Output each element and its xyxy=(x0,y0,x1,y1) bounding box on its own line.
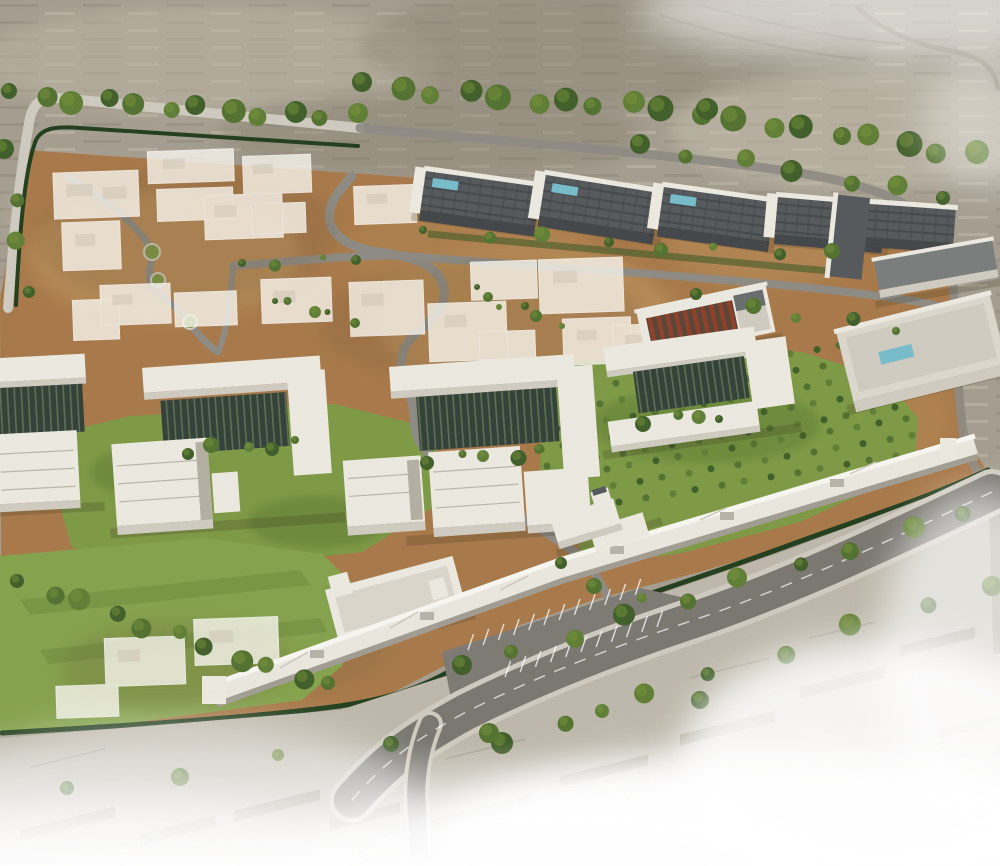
tree-highlight xyxy=(296,671,307,682)
tree-highlight xyxy=(783,162,795,174)
orchard-tree xyxy=(814,346,821,353)
tree-highlight xyxy=(835,128,845,138)
tree-highlight xyxy=(739,151,749,161)
tree-highlight xyxy=(615,605,627,617)
tree-highlight xyxy=(585,99,595,109)
tree-highlight xyxy=(165,103,174,112)
orchard-tree xyxy=(729,445,736,452)
orchard-tree xyxy=(610,482,617,489)
orchard-tree xyxy=(788,404,795,411)
orchard-tree xyxy=(778,436,785,443)
tree-highlight xyxy=(224,101,237,114)
tree-highlight xyxy=(313,111,322,120)
tree-highlight xyxy=(196,639,206,649)
south-cube xyxy=(0,430,80,504)
tree-highlight xyxy=(605,238,611,244)
tree-highlight xyxy=(636,685,647,696)
tree-highlight xyxy=(233,652,245,664)
east-bar xyxy=(287,369,332,475)
link-tower xyxy=(212,472,241,514)
tree-highlight xyxy=(310,307,317,314)
orchard-tree xyxy=(804,383,811,390)
glass-mullions xyxy=(0,384,85,437)
tree-highlight xyxy=(292,437,296,441)
orchard-tree xyxy=(793,367,800,374)
tree-highlight xyxy=(48,588,58,598)
tree-highlight xyxy=(133,620,144,631)
tree-highlight xyxy=(560,323,563,326)
tree-highlight xyxy=(497,304,500,307)
tree-highlight xyxy=(890,177,901,188)
tree-highlight xyxy=(846,177,855,186)
tree-highlight xyxy=(459,451,463,455)
tree-highlight xyxy=(321,255,324,258)
orchard-tree xyxy=(604,466,611,473)
tree-highlight xyxy=(791,116,804,129)
tree-highlight xyxy=(632,136,643,147)
tree-highlight xyxy=(111,607,120,616)
tree-highlight xyxy=(350,105,361,116)
orchard-tree xyxy=(860,440,867,447)
rendering-canvas xyxy=(0,0,1000,866)
tree-highlight xyxy=(792,314,798,320)
tree-highlight xyxy=(638,594,644,600)
tree-highlight xyxy=(556,89,569,102)
tree-highlight xyxy=(747,299,756,308)
tree-highlight xyxy=(183,449,190,456)
orchard-tree xyxy=(800,432,807,439)
tree-highlight xyxy=(795,558,803,566)
tree-highlight xyxy=(239,260,243,264)
orchard-tree xyxy=(820,363,827,370)
tree-highlight xyxy=(650,97,664,111)
tree-highlight xyxy=(61,93,74,106)
orchard-tree xyxy=(784,453,791,460)
tree-highlight xyxy=(40,89,51,100)
orchard-tree xyxy=(653,457,660,464)
orchard-tree xyxy=(762,457,769,464)
orchard-tree xyxy=(866,457,873,464)
tree-highlight xyxy=(351,319,357,325)
tree-highlight xyxy=(325,309,328,312)
tree-highlight xyxy=(245,443,251,449)
orchard-tree xyxy=(719,482,726,489)
tree-highlight xyxy=(24,287,31,294)
tree-highlight xyxy=(674,411,680,417)
tree-highlight xyxy=(485,233,492,240)
tree-highlight xyxy=(723,107,737,121)
tree-highlight xyxy=(478,451,485,458)
tree-highlight xyxy=(394,78,407,91)
tree-highlight xyxy=(273,298,276,301)
tree-highlight xyxy=(899,133,913,147)
standalone-cube-building xyxy=(343,455,426,535)
orchard-tree xyxy=(616,499,623,506)
tree-highlight xyxy=(512,451,521,460)
tree-highlight xyxy=(729,569,740,580)
tree-highlight xyxy=(484,293,490,299)
orchard-tree xyxy=(827,428,834,435)
orchard-tree xyxy=(544,463,551,470)
orchard-tree xyxy=(817,465,824,472)
orchard-tree xyxy=(619,396,626,403)
tree-highlight xyxy=(826,244,835,253)
tree-highlight xyxy=(423,88,433,98)
tree-highlight xyxy=(680,151,688,159)
orchard-tree xyxy=(909,432,916,439)
orchard-tree xyxy=(768,473,775,480)
orchard-tree xyxy=(795,469,802,476)
tree-highlight xyxy=(693,411,701,419)
orchard-tree xyxy=(876,419,883,426)
orchard-tree xyxy=(613,380,620,387)
tree-highlight xyxy=(588,579,597,588)
tree-highlight xyxy=(522,303,526,307)
tree-highlight xyxy=(775,249,782,256)
tree-highlight xyxy=(287,103,299,115)
orchard-tree xyxy=(892,404,899,411)
orchard-tree xyxy=(702,449,709,456)
tree-highlight xyxy=(11,575,19,583)
orchard-tree xyxy=(686,470,693,477)
tree-highlight xyxy=(532,96,543,107)
tree-highlight xyxy=(625,92,637,104)
tree-highlight xyxy=(702,668,710,676)
tree-highlight xyxy=(682,595,691,604)
tree-highlight xyxy=(637,417,646,426)
tree-highlight xyxy=(488,86,502,100)
tree-highlight xyxy=(843,544,853,554)
tree-highlight xyxy=(322,677,330,685)
orchard-tree xyxy=(741,478,748,485)
orchard-tree xyxy=(637,478,644,485)
tree-highlight xyxy=(848,313,856,321)
tree-highlight xyxy=(481,725,492,736)
tree-highlight xyxy=(259,658,268,667)
orchard-tree xyxy=(821,416,828,423)
orchard-tree xyxy=(643,494,650,501)
end-tower xyxy=(202,676,226,704)
orchard-tree xyxy=(854,424,861,431)
tree-highlight xyxy=(655,244,663,252)
tree-highlight xyxy=(124,95,136,107)
orchard-tree xyxy=(761,408,768,415)
tree-highlight xyxy=(270,261,277,268)
orchard-tree xyxy=(675,453,682,460)
tree-highlight xyxy=(8,233,18,243)
orchard-tree xyxy=(887,436,894,443)
tree-highlight xyxy=(463,81,475,93)
tree-highlight xyxy=(284,298,288,302)
tree-highlight xyxy=(266,443,274,451)
orchard-tree xyxy=(751,440,758,447)
end-tower xyxy=(940,438,956,458)
orchard-tree xyxy=(626,461,633,468)
tree-highlight xyxy=(421,457,429,465)
tree-highlight xyxy=(535,445,541,451)
orchard-tree xyxy=(597,400,604,407)
tree-highlight xyxy=(531,311,538,318)
tree-highlight xyxy=(698,100,710,112)
tree-highlight xyxy=(859,125,871,137)
glass-mullions xyxy=(416,387,559,451)
orchard-tree xyxy=(735,461,742,468)
tree-highlight xyxy=(556,558,563,565)
tree-highlight xyxy=(70,590,82,602)
tree-highlight xyxy=(937,192,945,200)
tree-highlight xyxy=(536,228,545,237)
tree-highlight xyxy=(710,243,714,247)
tree-highlight xyxy=(205,438,214,447)
tree-highlight xyxy=(454,657,465,668)
tree-highlight xyxy=(716,416,720,420)
tree-highlight xyxy=(505,646,513,654)
tree-highlight xyxy=(905,518,917,530)
tree-highlight xyxy=(102,90,112,100)
tree-highlight xyxy=(354,74,365,85)
tree-highlight xyxy=(568,631,578,641)
tree-highlight xyxy=(691,289,698,296)
tree-highlight xyxy=(767,120,778,131)
tree-highlight xyxy=(174,626,182,634)
orchard-tree xyxy=(837,396,844,403)
tree-highlight xyxy=(693,692,703,702)
tree-highlight xyxy=(596,705,604,713)
orchard-tree xyxy=(810,400,817,407)
orchard-tree xyxy=(903,415,910,422)
tree-highlight xyxy=(187,97,198,108)
orchard-tree xyxy=(826,379,833,386)
tree-highlight xyxy=(893,328,897,332)
tree-highlight xyxy=(3,84,12,93)
orchard-tree xyxy=(811,449,818,456)
tree-highlight xyxy=(841,615,853,627)
tree-highlight xyxy=(250,109,260,119)
tree-highlight xyxy=(475,284,478,287)
orchard-tree xyxy=(708,465,715,472)
tree-highlight xyxy=(559,717,568,726)
orchard-tree xyxy=(670,490,677,497)
orchard-tree xyxy=(833,444,840,451)
masterplan-rendering xyxy=(0,0,1000,866)
tree-highlight xyxy=(420,227,424,231)
orchard-tree xyxy=(844,461,851,468)
tree-highlight xyxy=(12,194,20,202)
tree-highlight xyxy=(352,256,358,262)
orchard-tree xyxy=(659,474,666,481)
orchard-tree xyxy=(692,486,699,493)
